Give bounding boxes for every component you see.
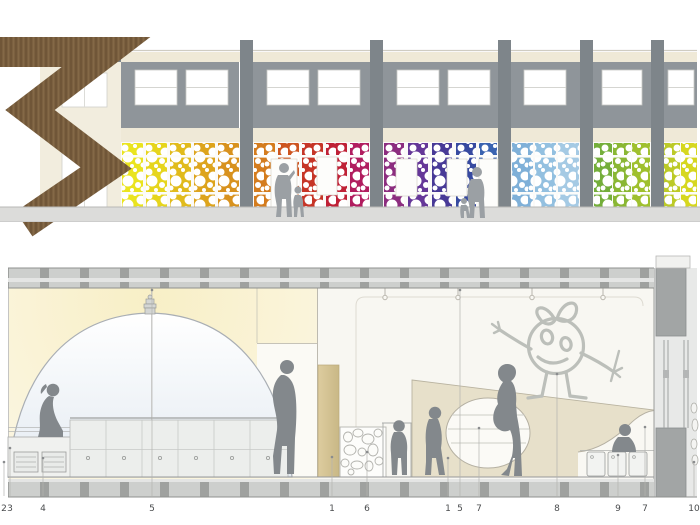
callout-number: 1 (329, 504, 335, 514)
facade-color-panel (170, 143, 191, 207)
callout-number: 8 (554, 504, 560, 514)
parapet-band (121, 52, 697, 62)
facade-color-panel (594, 143, 612, 207)
facade-color-panel (146, 143, 167, 207)
wall-base (656, 428, 686, 497)
facade-color-panel (681, 143, 697, 207)
facade-color-panel (218, 143, 239, 207)
facade-pilaster (370, 40, 383, 207)
facade-color-panel (194, 143, 215, 207)
ceiling-slab (8, 268, 654, 288)
floor-band (121, 128, 697, 142)
facade-color-panel (664, 143, 680, 207)
callout-number: 4 (40, 504, 46, 514)
facade-color-panel (122, 143, 143, 207)
tan-wood-panel (318, 365, 339, 477)
upper-window (397, 70, 439, 105)
callout-number: 7 (642, 504, 648, 514)
upper-window (602, 70, 642, 105)
facade-pilaster (580, 40, 593, 207)
section-label-2: 2 (1, 461, 7, 514)
facade-color-panel (613, 143, 631, 207)
perforated-screen (340, 427, 386, 477)
architecture-presentation-board: 23451615789710 (0, 0, 700, 525)
wall-beam (656, 268, 686, 336)
callout-number: 2 (1, 504, 7, 514)
callout-number: 6 (364, 504, 370, 514)
upper-window (267, 70, 309, 105)
facade-opening (396, 159, 417, 196)
upper-windows (135, 70, 694, 105)
facade-color-panel (350, 143, 369, 207)
facade-pilaster (240, 40, 253, 207)
facade-elevation-drawing (0, 40, 700, 224)
upper-window (524, 70, 566, 105)
upper-window (668, 70, 694, 105)
callout-number: 1 (445, 504, 451, 514)
upper-window (318, 70, 360, 105)
callout-number: 5 (149, 504, 155, 514)
upper-window (448, 70, 490, 105)
facade-pilaster (498, 40, 511, 207)
parapet-detail (656, 256, 690, 268)
counter-cabinets (70, 418, 288, 477)
facade-color-panel (558, 143, 579, 207)
callout-number: 10 (688, 504, 700, 514)
building-section-drawing: 23451615789710 (1, 256, 700, 514)
panel-joint-line (121, 155, 697, 158)
facade-color-panel (535, 143, 556, 207)
sidewalk (0, 207, 700, 222)
drawing-canvas: 23451615789710 (0, 0, 700, 525)
callout-number: 7 (476, 504, 482, 514)
right-wall-section (654, 256, 698, 497)
facade-opening (447, 159, 467, 196)
callout-number: 3 (7, 504, 13, 514)
facade-pilaster (651, 40, 664, 207)
upper-window (135, 70, 177, 105)
upper-window (186, 70, 228, 105)
callout-number: 5 (457, 504, 463, 514)
callout-number: 9 (615, 504, 621, 514)
facade-opening (317, 157, 337, 195)
facade-color-panel (632, 143, 650, 207)
facade-color-panel (512, 143, 533, 207)
